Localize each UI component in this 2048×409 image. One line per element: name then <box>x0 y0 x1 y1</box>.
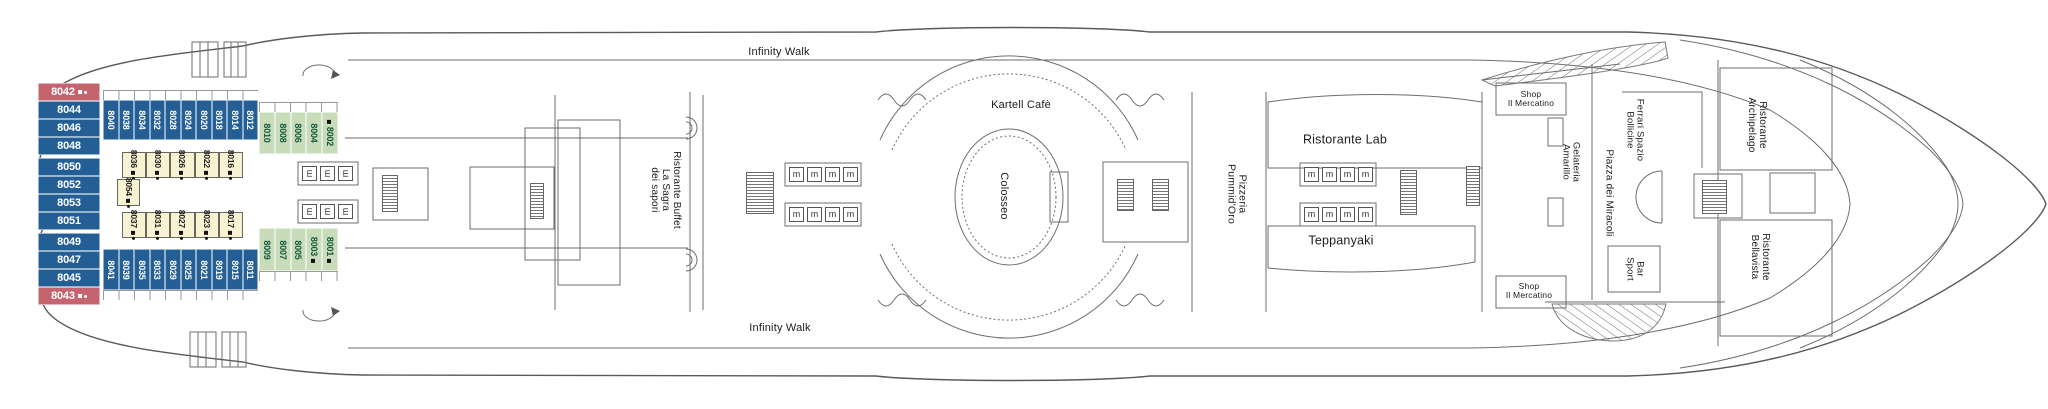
cabin-number: 8041 <box>106 260 116 279</box>
cabin-number: 8031 <box>153 210 163 228</box>
cabin-number: 8034 <box>137 110 147 129</box>
cabin-8020: 8020 <box>196 100 212 140</box>
accessible-square-icon <box>78 90 82 94</box>
gelateria-line2: Amarillo <box>1560 142 1570 182</box>
accessible-square-icon <box>156 171 160 175</box>
cabin-number: 8016 <box>226 150 236 168</box>
accessible-square-icon <box>327 120 331 124</box>
elevator-icon: m <box>338 166 353 181</box>
cabin-8029: 8029 <box>165 249 181 290</box>
elevator-icon: m <box>338 204 353 219</box>
cabin-number: 8044 <box>57 104 81 116</box>
elevator-icon: m <box>789 207 804 222</box>
accessible-square-icon <box>126 198 130 202</box>
balcony-dividers-top-blue <box>103 90 258 100</box>
cabin-8012: 8012 <box>243 100 259 140</box>
cabin-number: 8030 <box>153 150 163 168</box>
cabin-8018: 8018 <box>212 100 228 140</box>
buffet-line1: Ristorante Buffet <box>670 151 681 229</box>
balcony-dividers-bottom-green <box>259 271 338 281</box>
cabin-number: 8039 <box>121 260 131 279</box>
cabin-dot-icon <box>84 91 87 94</box>
accessible-square-icon <box>180 231 184 235</box>
cabin-8014: 8014 <box>227 100 243 140</box>
cabin-number: 8001 <box>325 236 335 255</box>
cabin-number: 8053 <box>57 197 81 209</box>
stairs-icon <box>746 172 774 214</box>
ristorante-archipelago-label: Ristorante Archipelago <box>1745 97 1767 152</box>
cabin-8050: 8050 <box>38 158 100 176</box>
elevator-icon: m <box>843 207 858 222</box>
cabin-number: 8019 <box>214 260 224 279</box>
cabin-number: 8051 <box>57 215 81 227</box>
elevator-icon: m <box>1340 207 1355 222</box>
accessible-square-icon <box>312 259 316 263</box>
cabin-dot-icon <box>204 177 207 180</box>
accessible-square-icon <box>131 231 135 235</box>
cabin-number: 8006 <box>293 123 303 142</box>
cabin-8030: 8030 <box>146 152 170 178</box>
cabin-8011: 8011 <box>243 249 259 290</box>
pizzeria-line1: Pizzeria <box>1236 164 1247 224</box>
cabin-number: 8005 <box>293 240 303 259</box>
cabin-dot-icon <box>84 295 87 298</box>
balcony-dividers-bottom-blue <box>103 290 258 300</box>
elevator-icon: m <box>1358 207 1373 222</box>
cabin-8053: 8053 <box>38 194 100 212</box>
balcony-dividers-top-green <box>259 102 338 112</box>
elevator-icon: m <box>1304 167 1319 182</box>
cabin-number: 8027 <box>177 210 187 228</box>
cabin-number: 8049 <box>57 236 81 248</box>
cabin-dot-icon <box>156 177 159 180</box>
cabin-number: 8025 <box>183 260 193 279</box>
cabin-dot-icon <box>156 237 159 240</box>
stairs-icon <box>1152 179 1169 211</box>
cabin-number: 8009 <box>262 240 272 259</box>
cabin-8033: 8033 <box>150 249 166 290</box>
cabin-8042: 8042 <box>38 83 100 101</box>
cabin-dot-icon <box>204 237 207 240</box>
cabin-8003: 8003 <box>306 228 322 271</box>
infinity-walk-top-label: Infinity Walk <box>748 47 809 59</box>
elevator-icon: m <box>807 207 822 222</box>
cabin-8049: 8049 <box>38 233 100 251</box>
stairs-icon <box>1466 166 1480 206</box>
cabin-8022: 8022 <box>195 152 219 178</box>
elevator-icon: m <box>789 167 804 182</box>
cabin-number: 8015 <box>230 260 240 279</box>
accessible-square-icon <box>327 259 331 263</box>
elevator-icon: m <box>302 166 317 181</box>
cabin-8021: 8021 <box>196 249 212 290</box>
cabin-8026: 8026 <box>170 152 194 178</box>
cabin-8039: 8039 <box>119 249 135 290</box>
stairs-icon <box>530 183 544 219</box>
cabin-number: 8021 <box>199 260 209 279</box>
cabin-number: 8023 <box>202 210 212 228</box>
elevator-icon: m <box>320 204 335 219</box>
cabin-8052: 8052 <box>38 176 100 194</box>
gelateria-label: Gelateria Amarillo <box>1560 142 1581 182</box>
cabin-number: 8010 <box>262 123 272 142</box>
elevator-icon: m <box>825 207 840 222</box>
shop-top-line2: Il Mercatino <box>1508 99 1554 108</box>
shop-bottom-line2: Il Mercatino <box>1506 291 1552 300</box>
cabin-8040: 8040 <box>103 100 119 140</box>
elevator-icon: m <box>302 204 317 219</box>
cabin-number: 8022 <box>202 150 212 168</box>
elevator-icon: m <box>807 167 822 182</box>
cabin-number: 8033 <box>152 260 162 279</box>
cabin-number: 8002 <box>325 127 335 146</box>
elevator-icon: m <box>1340 167 1355 182</box>
cabin-number: 8047 <box>57 254 81 266</box>
cabin-dot-icon <box>229 177 232 180</box>
cabin-number: 8014 <box>230 110 240 129</box>
ferrari-line1: Ferrari Spazio <box>1634 99 1644 161</box>
archipelago-line2: Archipelago <box>1745 97 1756 152</box>
accessible-square-icon <box>180 171 184 175</box>
piazza-miracoli-label: Piazza dei Miracoli <box>1603 149 1614 236</box>
cabin-8045: 8045 <box>38 269 100 287</box>
ferrari-spazio-label: Ferrari Spazio Bollicine <box>1624 99 1645 161</box>
cabin-number: 8038 <box>121 110 131 129</box>
elevator-icon: m <box>1304 207 1319 222</box>
gelateria-line1: Gelateria <box>1570 142 1580 182</box>
cabin-8043: 8043 <box>38 287 100 305</box>
cabin-number: 8028 <box>168 110 178 129</box>
cabin-8048: 8048 <box>38 137 100 155</box>
cabin-number: 8050 <box>57 161 81 173</box>
stairs-icon <box>382 175 398 212</box>
cabin-dot-icon <box>126 204 129 207</box>
cabin-8006: 8006 <box>291 112 307 154</box>
cabin-number: 8045 <box>57 272 81 284</box>
ristorante-bellavista-label: Ristorante Bellavista <box>1748 233 1770 281</box>
cabin-8010: 8010 <box>259 112 275 154</box>
cabin-8038: 8038 <box>119 100 135 140</box>
ferrari-line2: Bollicine <box>1624 99 1634 161</box>
cabin-8008: 8008 <box>275 112 291 154</box>
cabin-number: 8042 <box>51 86 75 98</box>
cabin-8046: 8046 <box>38 119 100 137</box>
cabin-dot-icon <box>180 177 183 180</box>
bar-sport-line1: Bar <box>1634 257 1644 281</box>
elevator-icon: m <box>843 167 858 182</box>
buffet-label: Ristorante Buffet La Sagra dei sapori <box>649 151 681 229</box>
cabin-number: 8029 <box>168 260 178 279</box>
cabin-8054: 8054 <box>117 179 140 206</box>
cabin-dot-icon <box>132 237 135 240</box>
accessible-square-icon <box>78 294 82 298</box>
cabin-8047: 8047 <box>38 251 100 269</box>
cabin-dot-icon <box>229 237 232 240</box>
teppanyaki-label: Teppanyaki <box>1308 234 1373 248</box>
cabin-8031: 8031 <box>146 212 170 238</box>
cabin-8024: 8024 <box>181 100 197 140</box>
cabin-number: 8035 <box>137 260 147 279</box>
cabin-number: 8054 <box>124 177 134 195</box>
cabin-8041: 8041 <box>103 249 119 290</box>
cabin-8005: 8005 <box>291 228 307 271</box>
kartell-cafe-label: Kartell Cafè <box>991 100 1051 112</box>
cabin-number: 8046 <box>57 122 81 134</box>
cabin-8028: 8028 <box>165 100 181 140</box>
accessible-square-icon <box>204 231 208 235</box>
infinity-walk-bottom-label: Infinity Walk <box>749 323 810 335</box>
bellavista-line1: Ristorante <box>1759 233 1770 281</box>
cabin-8051: 8051 <box>38 212 100 230</box>
cabin-number: 8004 <box>309 123 319 142</box>
stairs-icon <box>1702 180 1727 214</box>
cabin-8002: 8002 <box>322 112 338 154</box>
elevator-icon: m <box>1358 167 1373 182</box>
cabin-8017: 8017 <box>219 212 243 238</box>
cabin-8034: 8034 <box>134 100 150 140</box>
bar-sport-line2: Sport <box>1624 257 1634 281</box>
cabin-number: 8018 <box>214 110 224 129</box>
cabin-8037: 8037 <box>122 212 146 238</box>
cabin-number: 8026 <box>177 150 187 168</box>
pizzeria-line2: Pummid'Oro <box>1225 164 1236 224</box>
ship-deck-plan: 8042804480468048805080528053805180498047… <box>0 0 2048 409</box>
cabin-dot-icon <box>180 237 183 240</box>
archipelago-line1: Ristorante <box>1756 97 1767 152</box>
cabin-8023: 8023 <box>195 212 219 238</box>
cabin-8016: 8016 <box>219 152 243 178</box>
stairs-icon <box>1400 170 1417 215</box>
cabin-number: 8012 <box>245 110 255 129</box>
buffet-line3: dei sapori <box>649 151 660 229</box>
elevator-icon: m <box>320 166 335 181</box>
buffet-line2: La Sagra <box>660 151 671 229</box>
cabin-8015: 8015 <box>227 249 243 290</box>
cabin-8007: 8007 <box>275 228 291 271</box>
cabin-number: 8003 <box>309 236 319 255</box>
cabin-number: 8036 <box>129 150 139 168</box>
cabin-8027: 8027 <box>170 212 194 238</box>
elevator-icon: m <box>1322 207 1337 222</box>
elevator-icon: m <box>1322 167 1337 182</box>
cabin-number: 8011 <box>245 260 255 279</box>
cabin-8044: 8044 <box>38 101 100 119</box>
cabin-number: 8048 <box>57 140 81 152</box>
cabin-number: 8017 <box>226 210 236 228</box>
ristorante-lab-label: Ristorante Lab <box>1303 133 1387 147</box>
pizzeria-label: Pizzeria Pummid'Oro <box>1225 164 1248 224</box>
cabin-8019: 8019 <box>212 249 228 290</box>
bellavista-line2: Bellavista <box>1748 233 1759 281</box>
shop-mercatino-top-label: Shop Il Mercatino <box>1508 90 1554 108</box>
cabin-number: 8043 <box>51 290 75 302</box>
cabin-8036: 8036 <box>122 152 146 178</box>
cabin-8004: 8004 <box>306 112 322 154</box>
accessible-square-icon <box>228 171 232 175</box>
cabin-8035: 8035 <box>134 249 150 290</box>
shop-mercatino-bottom-label: Shop Il Mercatino <box>1506 282 1552 300</box>
cabin-number: 8052 <box>57 179 81 191</box>
cabin-number: 8040 <box>106 110 116 129</box>
cabin-number: 8032 <box>152 110 162 129</box>
accessible-square-icon <box>131 171 135 175</box>
cabin-8025: 8025 <box>181 249 197 290</box>
cabin-number: 8007 <box>278 240 288 259</box>
accessible-square-icon <box>156 231 160 235</box>
colosseo-label: Colosseo <box>997 172 1009 219</box>
cabin-number: 8020 <box>199 110 209 129</box>
accessible-square-icon <box>228 231 232 235</box>
cabin-number: 8037 <box>129 210 139 228</box>
accessible-square-icon <box>204 171 208 175</box>
cabin-number: 8024 <box>183 110 193 129</box>
elevator-icon: m <box>825 167 840 182</box>
cabin-8009: 8009 <box>259 228 275 271</box>
cabin-8032: 8032 <box>150 100 166 140</box>
cabin-8001: 8001 <box>322 228 338 271</box>
stairs-icon <box>1117 179 1134 211</box>
bar-sport-label: Bar Sport <box>1624 257 1645 281</box>
cabin-number: 8008 <box>278 123 288 142</box>
